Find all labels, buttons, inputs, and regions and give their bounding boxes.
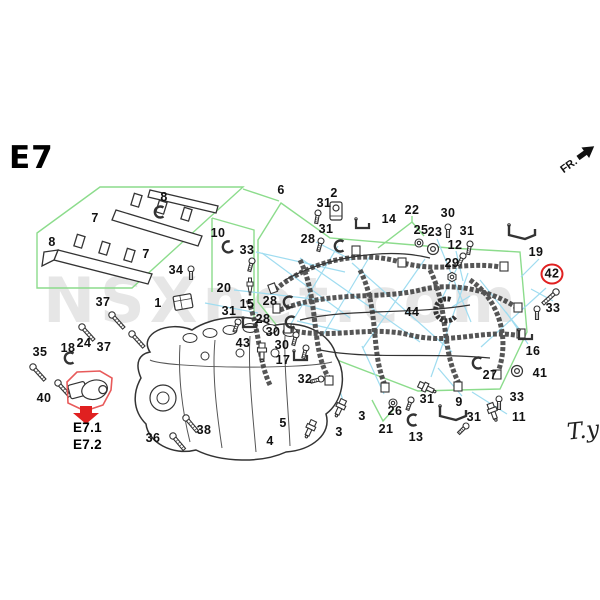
diagram-artwork: NSXnet.com <box>0 0 600 600</box>
callout-27[interactable]: 27 <box>482 368 499 383</box>
callout-31[interactable]: 31 <box>221 304 238 319</box>
callout-33[interactable]: 33 <box>509 390 526 405</box>
grommet-part-icon <box>428 244 439 255</box>
callout-30[interactable]: 30 <box>274 338 291 353</box>
callout-19[interactable]: 19 <box>528 245 545 260</box>
callout-24[interactable]: 24 <box>76 336 93 351</box>
fr-arrow-icon <box>574 141 598 163</box>
callout-9[interactable]: 9 <box>454 395 463 410</box>
clamp-part-icon <box>408 415 417 426</box>
callout-35[interactable]: 35 <box>32 345 49 360</box>
clamp-part-icon <box>335 241 344 252</box>
callout-17[interactable]: 17 <box>275 353 292 368</box>
callout-29[interactable]: 29 <box>444 256 461 271</box>
callout-37[interactable]: 37 <box>95 295 112 310</box>
callout-1[interactable]: 1 <box>153 296 162 311</box>
callout-22[interactable]: 22 <box>404 203 421 218</box>
callout-11[interactable]: 11 <box>511 410 527 425</box>
callout-28[interactable]: 28 <box>300 232 317 247</box>
bolt-part-icon <box>405 396 415 411</box>
highlighted-part-drawing <box>68 376 110 406</box>
callout-40[interactable]: 40 <box>36 391 53 406</box>
callout-6[interactable]: 6 <box>276 183 285 198</box>
callout-8[interactable]: 8 <box>159 190 168 205</box>
highlight-region[interactable] <box>67 371 112 424</box>
callout-33[interactable]: 33 <box>239 243 256 258</box>
callout-33[interactable]: 33 <box>545 301 562 316</box>
callout-3[interactable]: 3 <box>334 425 343 440</box>
callout-10[interactable]: 10 <box>210 226 227 241</box>
green-region-1 <box>243 189 279 201</box>
bracket-part-icon <box>355 218 369 228</box>
callout-13[interactable]: 13 <box>408 430 425 445</box>
fr-label: FR. <box>558 156 579 176</box>
nut-part-icon <box>448 272 456 281</box>
callout-37[interactable]: 37 <box>96 340 113 355</box>
callout-8[interactable]: 8 <box>47 235 56 250</box>
callout-20[interactable]: 20 <box>216 281 233 296</box>
callout-31[interactable]: 31 <box>466 410 483 425</box>
callout-23[interactable]: 23 <box>427 225 444 240</box>
callout-31[interactable]: 31 <box>459 224 476 239</box>
callout-30[interactable]: 30 <box>440 206 457 221</box>
callout-4[interactable]: 4 <box>265 434 274 449</box>
callout-32[interactable]: 32 <box>297 372 314 387</box>
diagram-code: E7 <box>9 140 54 176</box>
callout-38[interactable]: 38 <box>196 423 213 438</box>
lbracket-part-icon <box>508 224 535 239</box>
callout-12[interactable]: 12 <box>447 238 464 253</box>
clamp-part-icon <box>473 358 482 369</box>
callout-16[interactable]: 16 <box>525 344 542 359</box>
callout-31[interactable]: 31 <box>419 392 436 407</box>
callout-14[interactable]: 14 <box>381 212 398 227</box>
callout-34[interactable]: 34 <box>168 263 185 278</box>
bolt-part-icon <box>465 241 473 255</box>
callout-31[interactable]: 31 <box>316 196 333 211</box>
grommet-part-icon <box>512 366 523 377</box>
callout-42[interactable]: 42 <box>541 264 564 285</box>
callout-5[interactable]: 5 <box>278 416 287 431</box>
callout-15[interactable]: 15 <box>239 297 256 312</box>
bolt-part-icon <box>534 306 540 320</box>
callout-31[interactable]: 31 <box>318 222 335 237</box>
bolt-part-icon <box>445 224 451 238</box>
callout-43[interactable]: 43 <box>235 336 252 351</box>
parts-diagram-page: NSXnet.com <box>0 0 600 600</box>
callout-44[interactable]: 44 <box>404 305 421 320</box>
clamp-part-icon <box>221 241 233 254</box>
callout-41[interactable]: 41 <box>532 366 549 381</box>
callout-26[interactable]: 26 <box>387 404 404 419</box>
fr-direction-indicator: FR. <box>557 141 598 176</box>
callout-7[interactable]: 7 <box>90 211 99 226</box>
callout-3[interactable]: 3 <box>357 409 366 424</box>
bolt-part-icon <box>315 237 324 252</box>
sub-ref-e71[interactable]: E7.1 <box>73 419 102 436</box>
sub-diagram-refs[interactable]: E7.1 E7.2 <box>73 419 102 453</box>
leader-line-10 <box>521 259 539 277</box>
callout-36[interactable]: 36 <box>145 431 162 446</box>
callout-18[interactable]: 18 <box>60 341 77 356</box>
washer-part-icon <box>415 239 423 247</box>
illustrator-signature: T.y <box>566 416 600 445</box>
callout-21[interactable]: 21 <box>378 422 395 437</box>
lbolt-part-icon <box>28 362 47 382</box>
sub-ref-e72[interactable]: E7.2 <box>73 436 102 453</box>
callout-28[interactable]: 28 <box>262 294 279 309</box>
conn-part-icon <box>173 294 193 311</box>
callout-7[interactable]: 7 <box>141 247 150 262</box>
